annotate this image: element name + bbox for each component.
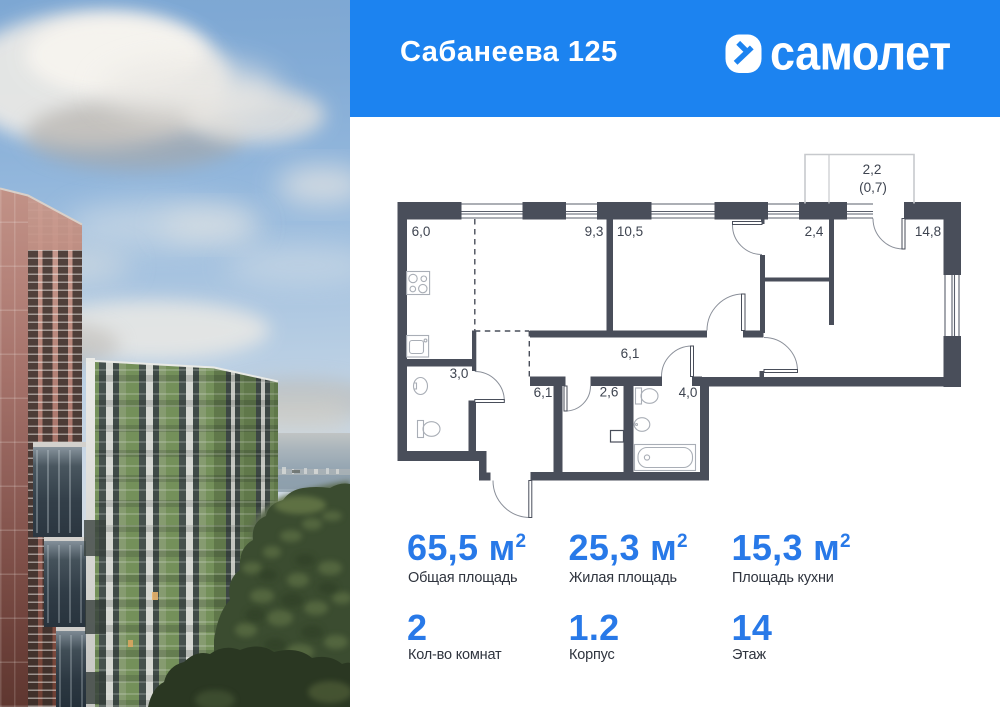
svg-text:(0,7): (0,7) xyxy=(859,180,887,195)
svg-text:2,2: 2,2 xyxy=(863,162,882,177)
svg-text:2,6: 2,6 xyxy=(600,385,619,400)
svg-text:6,1: 6,1 xyxy=(534,385,553,400)
svg-text:4,0: 4,0 xyxy=(679,385,698,400)
svg-text:6,0: 6,0 xyxy=(412,224,431,239)
svg-text:10,5: 10,5 xyxy=(617,224,643,239)
svg-text:9,3: 9,3 xyxy=(585,224,604,239)
svg-text:3,0: 3,0 xyxy=(450,366,469,381)
svg-text:14,8: 14,8 xyxy=(915,224,941,239)
svg-text:6,1: 6,1 xyxy=(621,346,640,361)
svg-text:2,4: 2,4 xyxy=(805,224,824,239)
